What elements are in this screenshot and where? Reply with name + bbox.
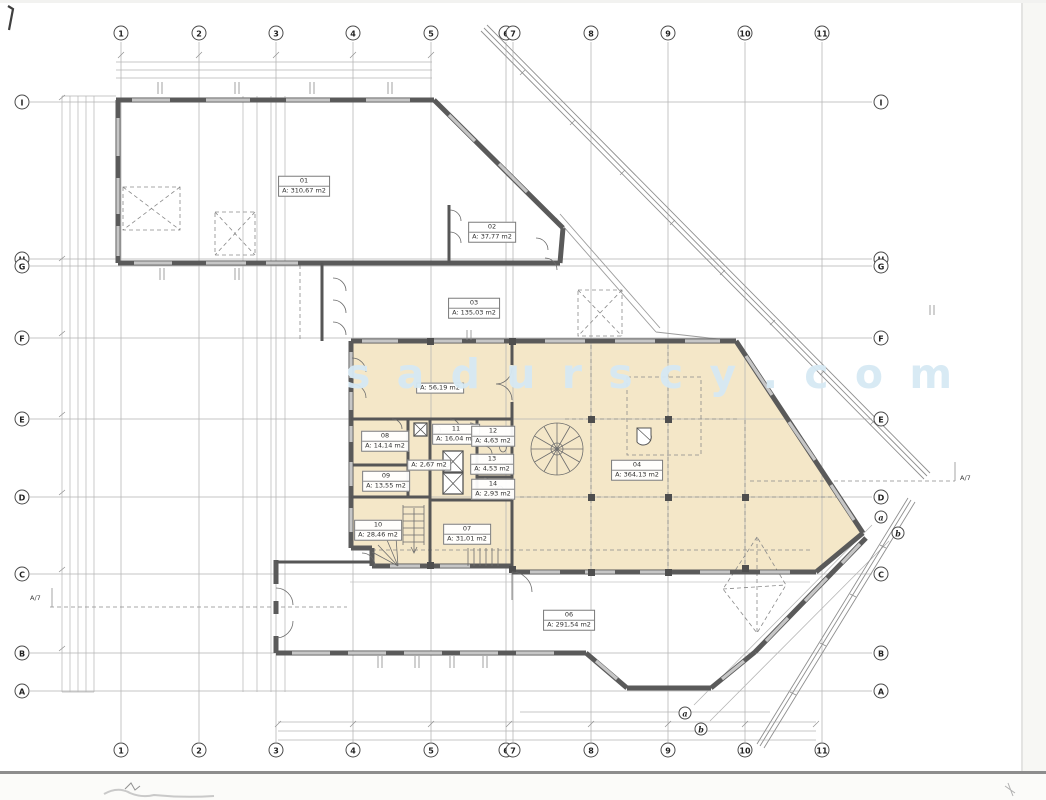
spiral-staircase [531,423,583,475]
floor-plan-drawing [0,0,1046,800]
shield-icon [637,428,651,445]
floor-plan-scan: s a d u r s c y . c o m 1122334455667788… [0,0,1046,800]
highlighted-area [351,341,863,572]
